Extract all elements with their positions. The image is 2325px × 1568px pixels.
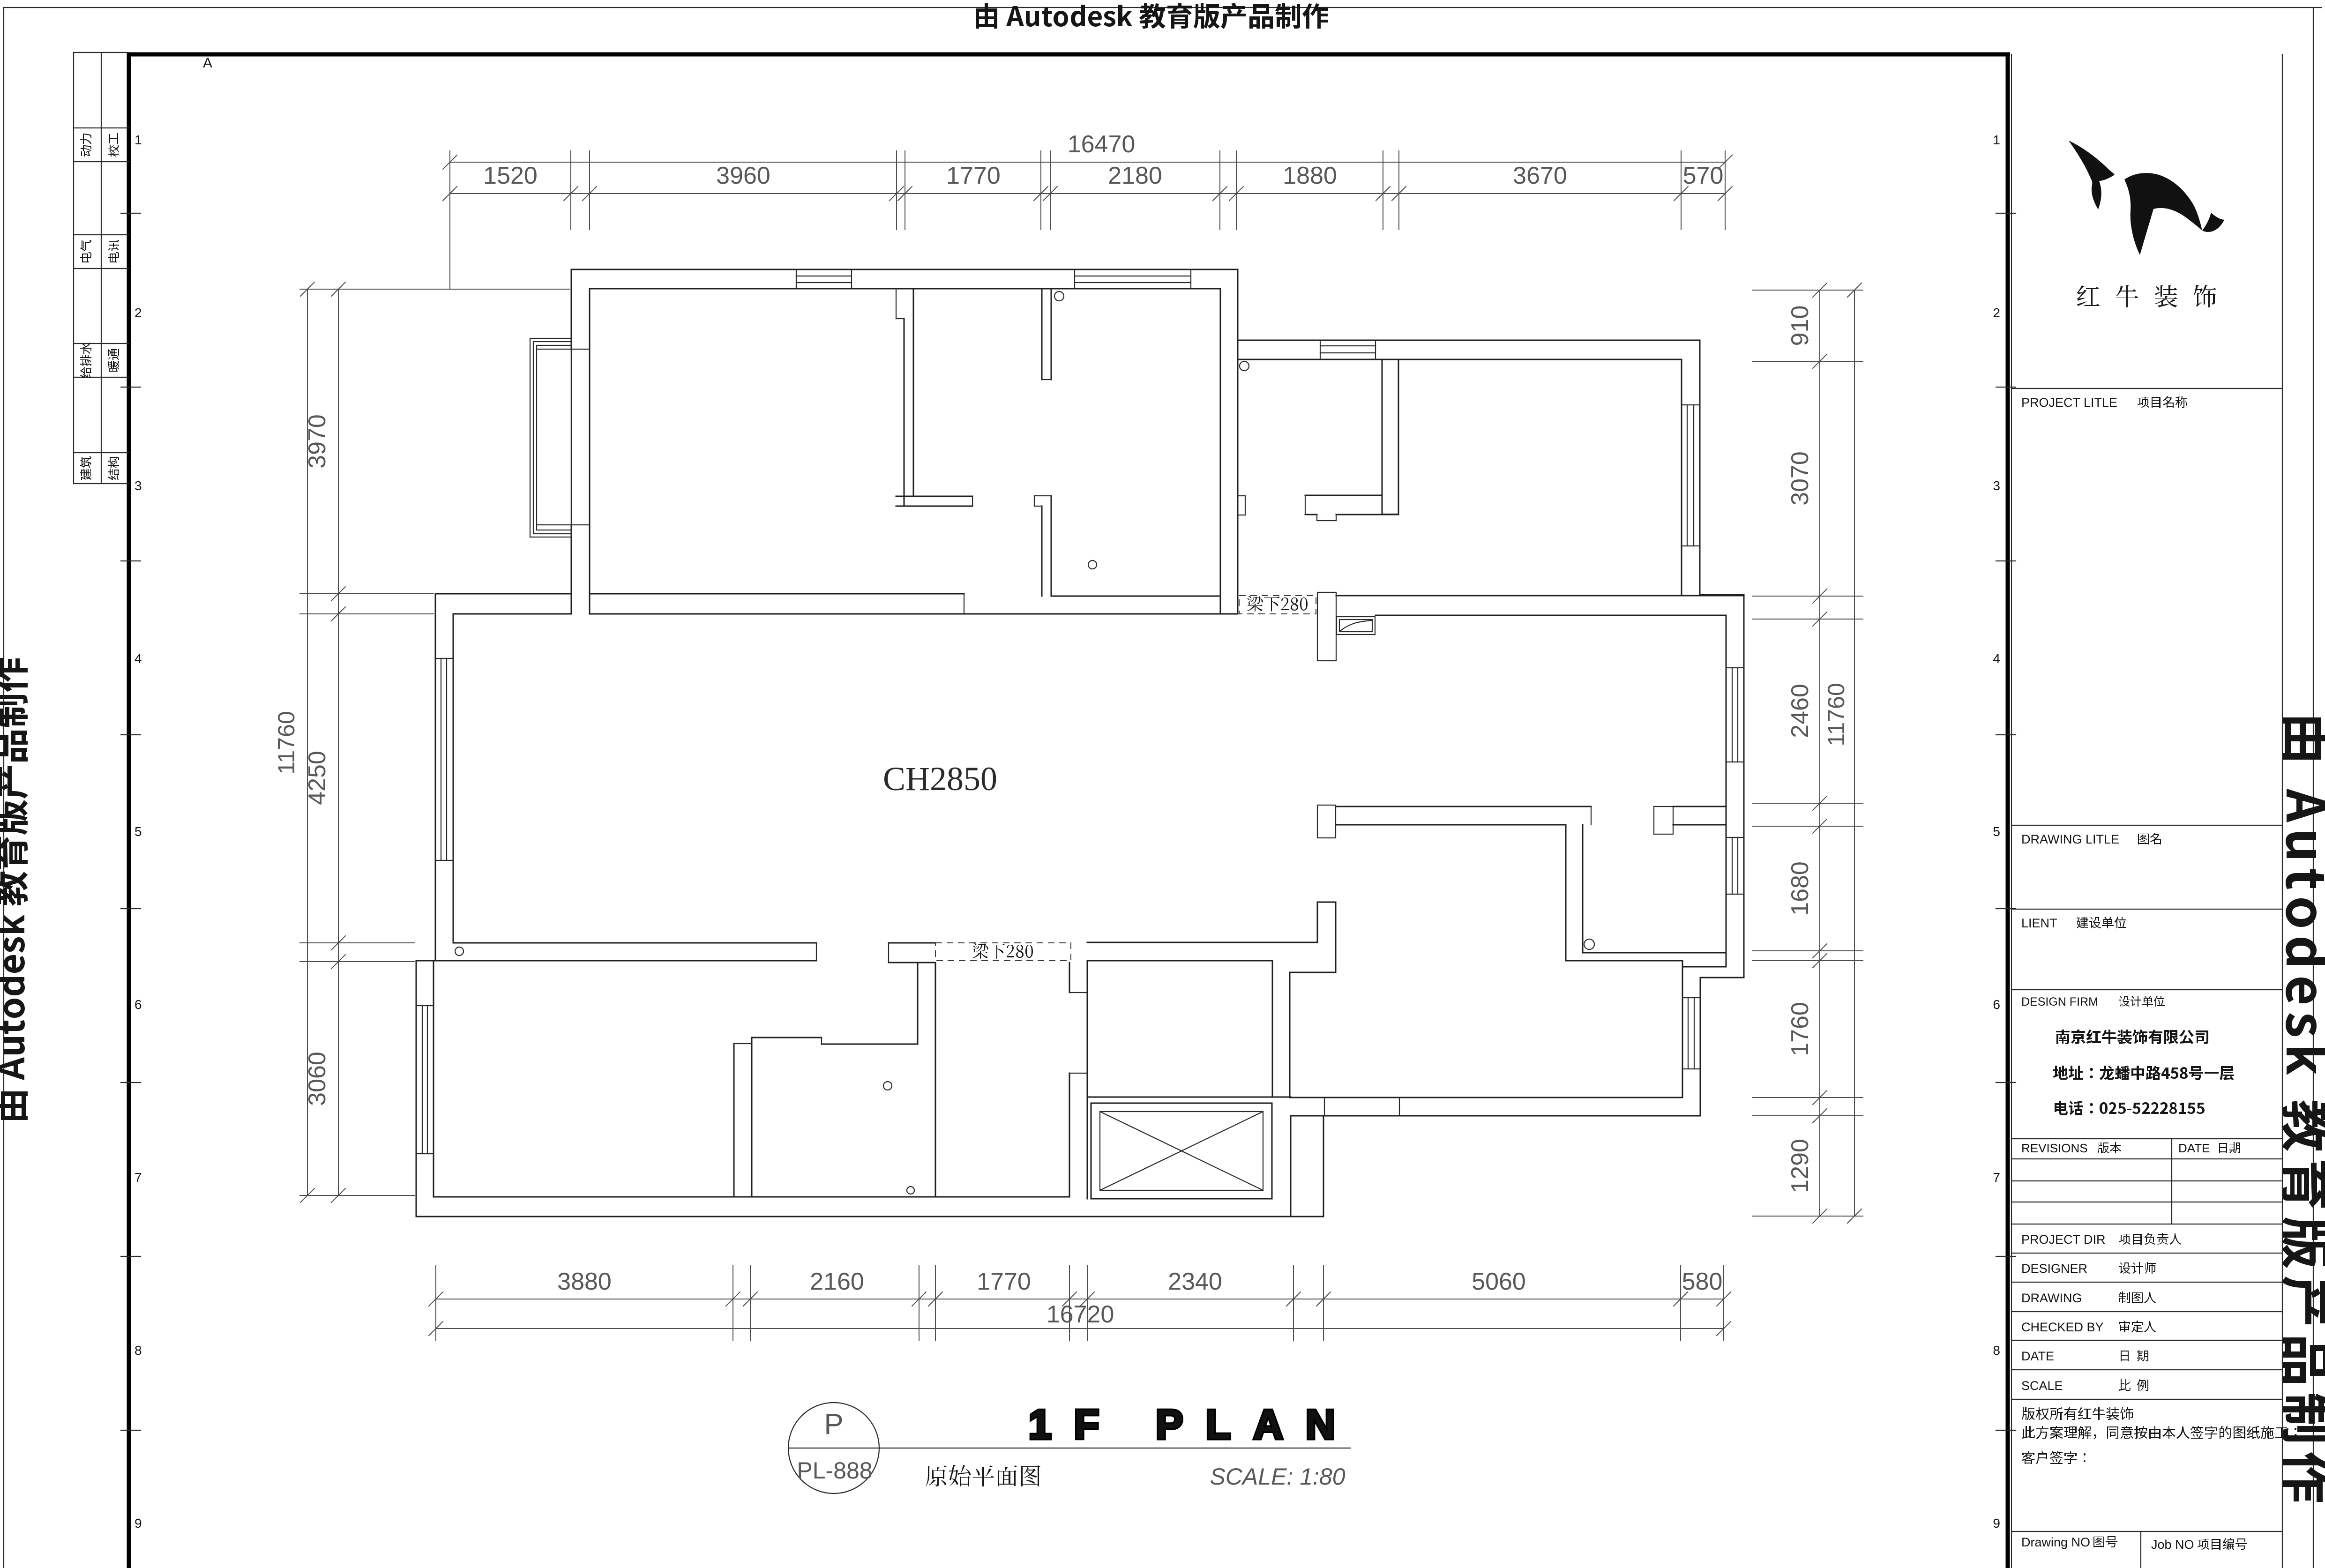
svg-text:570: 570 — [1683, 162, 1724, 189]
svg-text:DATE: DATE — [2178, 1141, 2210, 1155]
svg-text:1: 1 — [1993, 133, 2000, 147]
svg-text:7: 7 — [135, 1170, 142, 1185]
svg-text:3880: 3880 — [557, 1268, 612, 1295]
svg-text:6: 6 — [135, 997, 142, 1012]
svg-text:Drawing NO: Drawing NO — [2021, 1535, 2090, 1549]
svg-text:3960: 3960 — [716, 162, 770, 189]
svg-text:2160: 2160 — [810, 1268, 864, 1295]
svg-text:5: 5 — [135, 824, 142, 839]
svg-text:1F PLAN: 1F PLAN — [1029, 1401, 1358, 1448]
svg-text:DRAWING: DRAWING — [2021, 1291, 2082, 1305]
svg-text:2: 2 — [1993, 306, 2000, 320]
svg-text:8: 8 — [135, 1343, 142, 1358]
svg-text:DATE: DATE — [2021, 1349, 2054, 1363]
svg-text:DESIGN FIRM: DESIGN FIRM — [2021, 995, 2098, 1008]
svg-text:5060: 5060 — [1472, 1268, 1526, 1295]
svg-text:CH2850: CH2850 — [883, 760, 997, 798]
svg-text:11760: 11760 — [273, 711, 299, 774]
svg-text:2340: 2340 — [1168, 1268, 1222, 1295]
svg-text:1520: 1520 — [483, 162, 538, 189]
svg-text:16470: 16470 — [1068, 131, 1136, 158]
svg-text:LIENT: LIENT — [2021, 916, 2057, 930]
svg-text:5: 5 — [1993, 824, 2000, 839]
svg-text:3970: 3970 — [304, 414, 331, 469]
svg-text:REVISIONS: REVISIONS — [2021, 1141, 2088, 1155]
svg-text:PL-888: PL-888 — [797, 1457, 872, 1484]
svg-text:CHECKED BY: CHECKED BY — [2021, 1320, 2104, 1334]
svg-text:DESIGNER: DESIGNER — [2021, 1262, 2087, 1276]
svg-text:SCALE: 1:80: SCALE: 1:80 — [1210, 1463, 1345, 1490]
svg-text:PROJECT DIR: PROJECT DIR — [2021, 1232, 2106, 1247]
svg-text:2460: 2460 — [1787, 684, 1814, 738]
svg-text:7: 7 — [1993, 1170, 2000, 1185]
svg-text:580: 580 — [1682, 1268, 1723, 1295]
svg-text:1770: 1770 — [946, 162, 1001, 189]
svg-text:2180: 2180 — [1108, 162, 1162, 189]
svg-text:1: 1 — [135, 133, 142, 147]
svg-text:6: 6 — [1993, 997, 2000, 1012]
svg-text:3670: 3670 — [1513, 162, 1567, 189]
svg-text:910: 910 — [1787, 306, 1814, 346]
svg-text:4250: 4250 — [304, 751, 331, 805]
svg-text:PROJECT LITLE: PROJECT LITLE — [2021, 396, 2117, 410]
svg-text:11760: 11760 — [1823, 683, 1849, 746]
svg-text:9: 9 — [1993, 1516, 2000, 1531]
svg-text:4: 4 — [135, 651, 142, 666]
svg-text:SCALE: SCALE — [2021, 1379, 2063, 1393]
svg-text:DRAWING LITLE: DRAWING LITLE — [2021, 832, 2119, 846]
svg-text:Job NO: Job NO — [2151, 1538, 2194, 1552]
svg-text:4: 4 — [1993, 651, 2000, 666]
svg-text:3070: 3070 — [1787, 451, 1814, 506]
svg-text:A: A — [203, 55, 212, 71]
svg-text:3: 3 — [1993, 478, 2000, 493]
svg-text:1770: 1770 — [977, 1268, 1031, 1295]
svg-text:16720: 16720 — [1047, 1301, 1114, 1328]
svg-text:1290: 1290 — [1787, 1139, 1814, 1193]
svg-text:8: 8 — [1993, 1343, 2000, 1358]
svg-text:1880: 1880 — [1283, 162, 1337, 189]
svg-text:P: P — [824, 1408, 843, 1441]
svg-text:9: 9 — [135, 1516, 142, 1531]
svg-text:1680: 1680 — [1787, 861, 1814, 916]
svg-text:2: 2 — [135, 306, 142, 320]
svg-text:3060: 3060 — [304, 1052, 331, 1106]
svg-text:3: 3 — [135, 478, 142, 493]
svg-text:1760: 1760 — [1787, 1002, 1814, 1056]
